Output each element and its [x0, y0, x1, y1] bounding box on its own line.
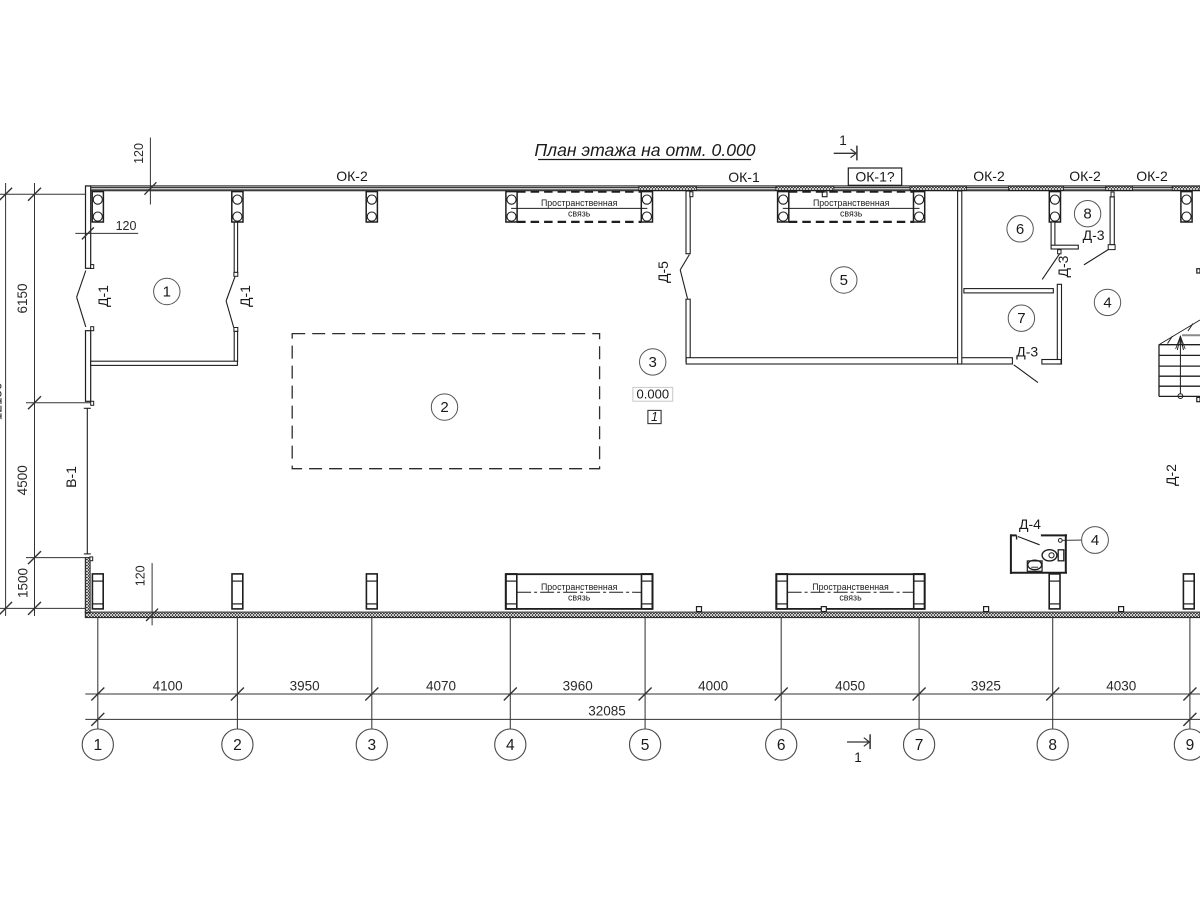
svg-text:План этажа на отм. 0.000: План этажа на отм. 0.000: [534, 140, 755, 160]
svg-text:Д-3: Д-3: [1016, 344, 1038, 360]
svg-text:2: 2: [233, 737, 242, 754]
svg-text:6: 6: [777, 737, 786, 754]
svg-text:Д-4: Д-4: [1019, 516, 1041, 532]
svg-text:4: 4: [1091, 532, 1099, 549]
svg-text:32085: 32085: [588, 704, 626, 719]
svg-text:связь: связь: [839, 593, 862, 603]
svg-text:5: 5: [840, 272, 848, 289]
svg-text:6150: 6150: [15, 283, 30, 313]
svg-text:ОК-2: ОК-2: [336, 168, 368, 184]
svg-text:3925: 3925: [971, 678, 1001, 693]
svg-text:4050: 4050: [835, 678, 865, 693]
svg-text:ОК-1: ОК-1: [728, 169, 760, 185]
svg-text:связь: связь: [568, 209, 591, 219]
svg-text:Д-1: Д-1: [95, 285, 111, 307]
svg-text:6: 6: [1016, 221, 1024, 238]
svg-text:5: 5: [641, 737, 650, 754]
svg-text:связь: связь: [840, 209, 863, 219]
svg-text:связь: связь: [568, 593, 591, 603]
svg-text:4000: 4000: [698, 678, 728, 693]
svg-text:2: 2: [440, 399, 448, 416]
svg-text:1: 1: [651, 410, 658, 424]
svg-text:9: 9: [1186, 737, 1195, 754]
svg-text:12150: 12150: [0, 383, 5, 421]
svg-text:4100: 4100: [153, 678, 183, 693]
svg-text:8: 8: [1083, 206, 1091, 223]
svg-text:4030: 4030: [1106, 678, 1136, 693]
svg-text:8: 8: [1048, 737, 1057, 754]
svg-text:4070: 4070: [426, 678, 456, 693]
svg-text:ОК-1?: ОК-1?: [855, 169, 894, 185]
svg-text:0.000: 0.000: [637, 386, 670, 401]
svg-text:ОК-2: ОК-2: [1136, 168, 1168, 184]
svg-text:В-1: В-1: [63, 466, 79, 488]
svg-text:Д-1: Д-1: [237, 285, 253, 307]
svg-text:1500: 1500: [16, 568, 31, 598]
svg-text:Пространственная: Пространственная: [813, 198, 890, 208]
svg-text:1: 1: [854, 750, 862, 765]
svg-text:4: 4: [1103, 294, 1111, 311]
svg-text:1: 1: [163, 284, 171, 301]
svg-text:ОК-2: ОК-2: [1069, 168, 1101, 184]
svg-text:3960: 3960: [563, 678, 593, 693]
svg-text:3: 3: [649, 354, 657, 371]
svg-text:4: 4: [506, 737, 515, 754]
svg-text:Пространственная: Пространственная: [541, 582, 618, 592]
svg-text:Пространственная: Пространственная: [541, 198, 618, 208]
svg-text:4500: 4500: [15, 465, 30, 495]
svg-text:3: 3: [367, 737, 376, 754]
svg-text:Пространственная: Пространственная: [812, 582, 889, 592]
svg-text:ОК-2: ОК-2: [973, 168, 1005, 184]
svg-text:Д-3: Д-3: [1055, 255, 1071, 277]
svg-text:120: 120: [134, 565, 148, 586]
svg-text:Д-5: Д-5: [655, 261, 671, 283]
svg-text:1: 1: [93, 737, 102, 754]
svg-text:120: 120: [116, 219, 137, 233]
svg-text:Д-2: Д-2: [1163, 464, 1179, 486]
svg-text:7: 7: [1017, 310, 1025, 327]
svg-text:3950: 3950: [290, 678, 320, 693]
svg-text:7: 7: [915, 737, 924, 754]
svg-text:Д-3: Д-3: [1083, 227, 1105, 243]
svg-text:1: 1: [839, 133, 847, 148]
svg-text:120: 120: [132, 143, 146, 164]
